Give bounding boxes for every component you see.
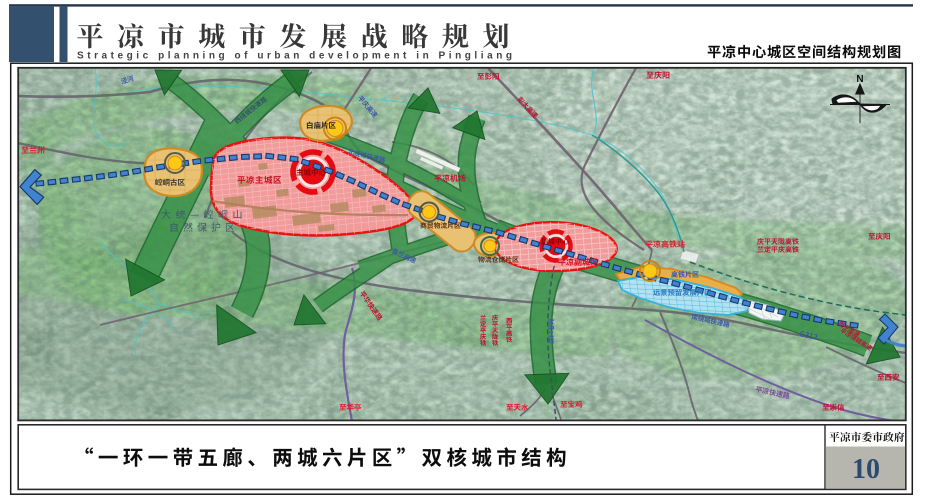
- svg-text:N: N: [856, 74, 863, 85]
- svg-text:10: 10: [852, 454, 880, 485]
- svg-text:Strategic planning of urban de: Strategic planning of urban development …: [77, 51, 516, 62]
